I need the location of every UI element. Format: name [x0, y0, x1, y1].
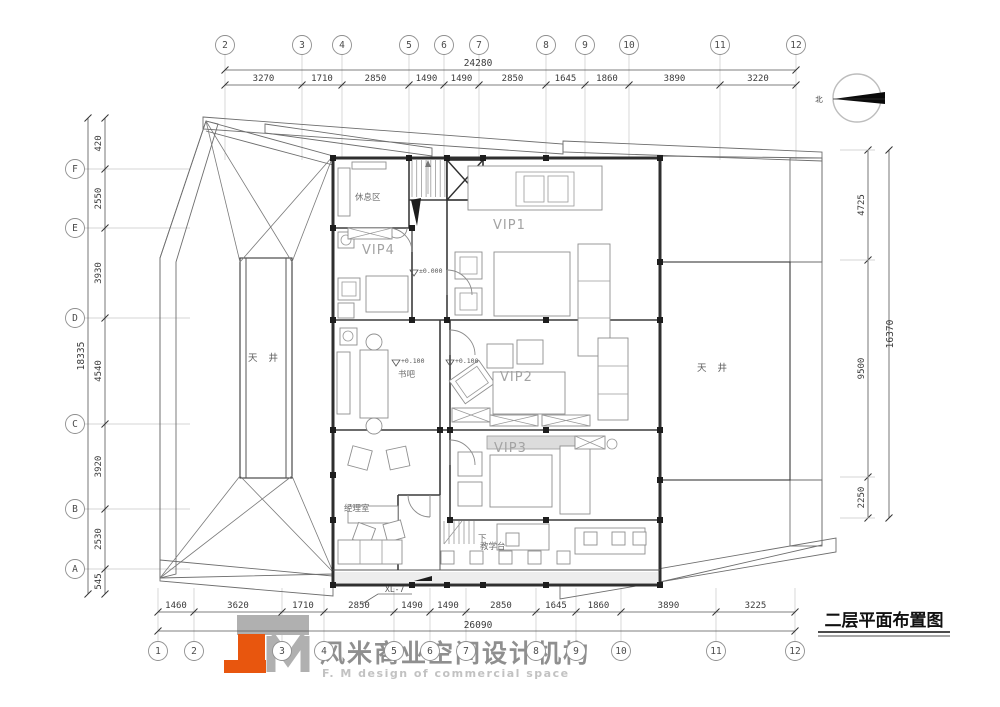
- grid-bubble-label: 5: [406, 40, 412, 51]
- dim-label-bottom: 1490: [437, 601, 459, 611]
- floor-plan-sheet: 休息区 VIP1 VIP4 书吧 VIP2 VIP3 经理室 教学台 天 井 天…: [0, 0, 1000, 707]
- dim-label-top: 3890: [664, 74, 686, 84]
- column: [657, 517, 663, 523]
- grid-bubble-label: 11: [710, 646, 722, 657]
- column: [409, 582, 415, 588]
- logo-orange-foot: [224, 660, 266, 673]
- column: [444, 155, 450, 161]
- grid-bubble-label: 1: [155, 646, 161, 657]
- right-wing-roof-top: [660, 156, 822, 262]
- stair-down-label: 下: [478, 534, 487, 544]
- dim-label-top: 2850: [365, 74, 387, 84]
- svg-text:XL-7: XL-7: [385, 585, 404, 594]
- stool: [506, 533, 519, 546]
- logo-grey-bar: [237, 615, 309, 635]
- dim-label-top: 1860: [596, 74, 618, 84]
- dim-label-left: 420: [94, 135, 104, 151]
- room-label-vip3: VIP3: [494, 441, 527, 456]
- grid-bubble-label: 10: [615, 646, 627, 657]
- column: [330, 472, 336, 478]
- dim-label-bottom: 1710: [292, 601, 314, 611]
- grid-bubble-label: F: [72, 164, 78, 175]
- room-label-vip2: VIP2: [500, 370, 533, 385]
- column: [657, 477, 663, 483]
- column: [409, 225, 415, 231]
- room-label-rest-area: 休息区: [355, 192, 381, 203]
- grid-bubble-label: 6: [441, 40, 447, 51]
- overall-dim-right: 16370: [885, 319, 896, 348]
- stool: [584, 532, 597, 545]
- column: [444, 582, 450, 588]
- floor-plan-drawing: 休息区 VIP1 VIP4 书吧 VIP2 VIP3 经理室 教学台 天 井 天…: [0, 0, 1000, 707]
- north-arrow: 北: [815, 74, 885, 122]
- grid-bubble-label: 9: [573, 646, 579, 657]
- column: [480, 155, 486, 161]
- courtyard-right-label: 天 井: [697, 362, 731, 374]
- dim-label-bottom: 1460: [165, 601, 187, 611]
- grid-bubble-label: 8: [533, 646, 539, 657]
- column: [543, 317, 549, 323]
- room-label-vip1: VIP1: [493, 218, 526, 233]
- column: [543, 582, 549, 588]
- grid-bubble-label: 2: [191, 646, 197, 657]
- logo-en-text: F. M design of commercial space: [322, 667, 570, 680]
- grid-bubble-label: 11: [714, 40, 726, 51]
- column: [480, 582, 486, 588]
- bottom-roof-band-left: [160, 560, 333, 596]
- dim-label-bottom: 1490: [401, 601, 423, 611]
- grid-bubble-label: 6: [427, 646, 433, 657]
- dim-label-bottom: 1645: [545, 601, 567, 611]
- grid-bubble-label: A: [72, 564, 78, 575]
- dim-label-right: 2250: [857, 487, 867, 509]
- dim-label-top: 3220: [747, 74, 769, 84]
- dim-label-bottom: 2850: [348, 601, 370, 611]
- grid-bubble-label: E: [72, 223, 78, 234]
- column: [543, 517, 549, 523]
- room-label-vip4: VIP4: [362, 243, 395, 258]
- dim-label-bottom: 1860: [588, 601, 610, 611]
- overall-dim-left: 18335: [76, 342, 87, 371]
- column: [447, 517, 453, 523]
- grid-bubble-label: D: [72, 313, 78, 324]
- column: [330, 582, 336, 588]
- dim-label-left: 2550: [94, 188, 104, 210]
- grid-bubble-label: 10: [623, 40, 635, 51]
- grid-bubble-label: 7: [476, 40, 482, 51]
- stool: [499, 551, 512, 564]
- column: [543, 155, 549, 161]
- column: [409, 317, 415, 323]
- dim-label-top: 1710: [311, 74, 333, 84]
- column: [543, 427, 549, 433]
- dim-label-right: 9500: [857, 358, 867, 380]
- column: [657, 259, 663, 265]
- dim-label-top: 3270: [253, 74, 275, 84]
- column: [447, 427, 453, 433]
- dim-label-left: 3930: [94, 262, 104, 284]
- courtyard-left-area: [240, 258, 292, 478]
- dim-label-top: 1490: [416, 74, 438, 84]
- dim-label-bottom: 3620: [227, 601, 249, 611]
- dim-label-bottom: 3890: [658, 601, 680, 611]
- dim-label-bottom: 3225: [745, 601, 767, 611]
- stool: [633, 532, 646, 545]
- grid-bubble-label: 8: [543, 40, 549, 51]
- left-wing-eave-strip: [160, 121, 218, 578]
- column: [330, 517, 336, 523]
- column: [657, 427, 663, 433]
- column: [330, 427, 336, 433]
- dim-label-left: 2530: [94, 528, 104, 550]
- right-wing-roof-bottom: [660, 480, 822, 582]
- drawing-title-text: 二层平面布置图: [825, 610, 944, 631]
- north-label: 北: [815, 95, 823, 104]
- dim-label-right: 4725: [857, 194, 867, 216]
- dim-label-left: 4540: [94, 360, 104, 382]
- svg-text:+0.100: +0.100: [455, 357, 479, 365]
- stool: [557, 551, 570, 564]
- courtyard-left-label: 天 井: [248, 352, 282, 364]
- room-label-book-bar: 书吧: [398, 369, 416, 380]
- grid-bubble-label: 4: [339, 40, 345, 51]
- column: [330, 317, 336, 323]
- grid-bubble-label: 3: [299, 40, 305, 51]
- room-label-manager-office: 经理室: [344, 503, 370, 514]
- column: [657, 155, 663, 161]
- overall-dim-bottom: 26090: [464, 620, 493, 631]
- stool: [612, 532, 625, 545]
- grid-bubble-label: 9: [582, 40, 588, 51]
- dim-label-top: 2850: [502, 74, 524, 84]
- dim-label-top: 1490: [451, 74, 473, 84]
- svg-text:+0.100: +0.100: [401, 357, 425, 365]
- column: [330, 155, 336, 161]
- right-wing-eave-strip: [790, 158, 822, 546]
- drawing-title: 二层平面布置图: [818, 610, 950, 636]
- grid-bubble-label: 7: [463, 646, 469, 657]
- dim-label-left: 3920: [94, 456, 104, 478]
- grid-bubble-label: C: [72, 419, 78, 430]
- column: [330, 225, 336, 231]
- stool: [528, 551, 541, 564]
- logo-cn-text: 风米商业空间设计机构: [320, 639, 590, 668]
- grid-bubble-label: 12: [790, 40, 801, 51]
- column: [406, 155, 412, 161]
- bottom-corridor-floor: [335, 572, 658, 583]
- north-arrow-wedge: [833, 92, 885, 104]
- stool: [470, 551, 483, 564]
- grid-bubble-label: 2: [222, 40, 228, 51]
- column: [437, 427, 443, 433]
- dim-label-left: 545: [94, 573, 104, 589]
- dim-label-bottom: 2850: [490, 601, 512, 611]
- grid-bubble-label: 12: [789, 646, 800, 657]
- grid-bubble-label: 3: [279, 646, 285, 657]
- top-roof-band-overlay: [265, 124, 432, 156]
- grid-bubble-label: 4: [321, 646, 327, 657]
- stool: [441, 551, 454, 564]
- overall-dim-top: 24280: [464, 58, 493, 69]
- grid-bubble-label: 5: [391, 646, 397, 657]
- dim-label-top: 1645: [555, 74, 577, 84]
- svg-text:±0.000: ±0.000: [419, 267, 443, 275]
- column: [657, 317, 663, 323]
- grid-bubble-label: B: [72, 504, 78, 515]
- bench: [338, 168, 350, 216]
- column: [657, 582, 663, 588]
- column: [444, 317, 450, 323]
